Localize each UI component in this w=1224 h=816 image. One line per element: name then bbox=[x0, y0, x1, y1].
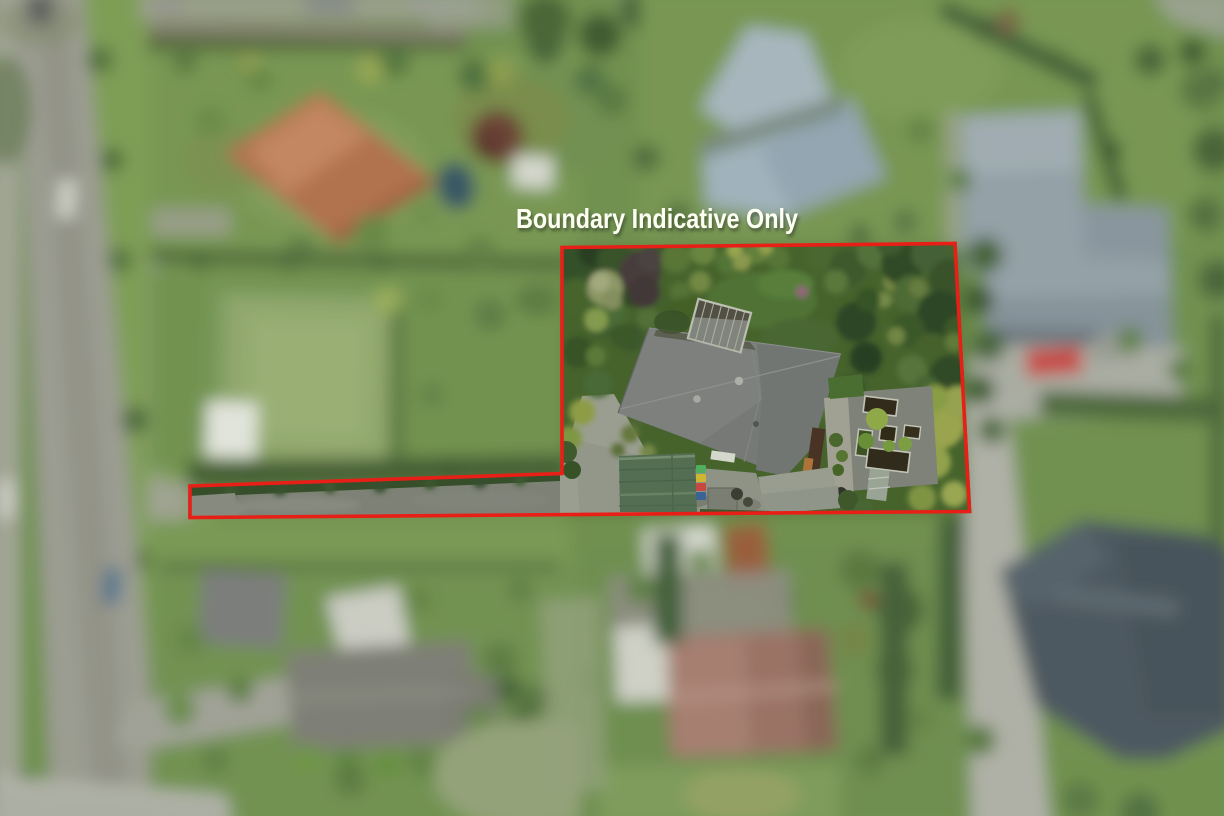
svg-text:Boundary Indicative Only: Boundary Indicative Only bbox=[516, 203, 798, 234]
